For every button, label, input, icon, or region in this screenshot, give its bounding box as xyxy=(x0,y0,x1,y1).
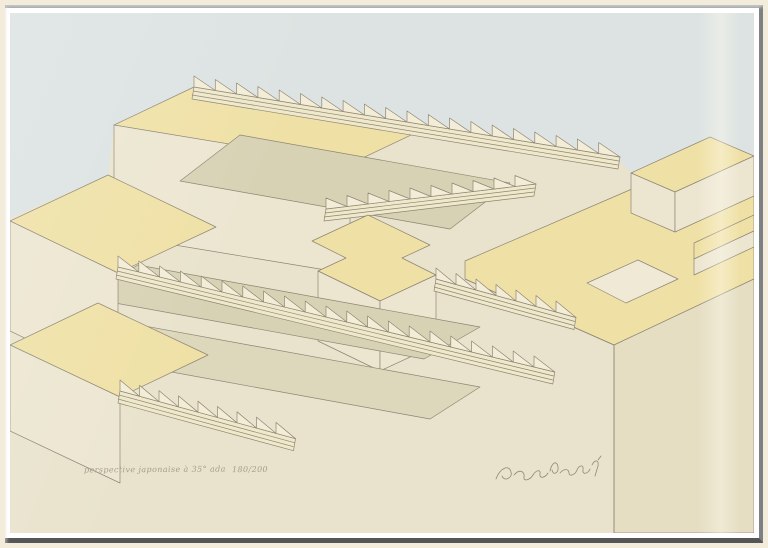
print-sheet: perspective japonaise à 35° ada 180/200 xyxy=(10,13,754,533)
edition-number: 180/200 xyxy=(232,465,268,474)
stepped-structure-illustration xyxy=(10,13,754,533)
artist-signature xyxy=(488,451,608,495)
framed-artwork-photo: perspective japonaise à 35° ada 180/200 xyxy=(0,0,768,548)
title-inscription: perspective japonaise à 35° ada xyxy=(84,465,226,475)
